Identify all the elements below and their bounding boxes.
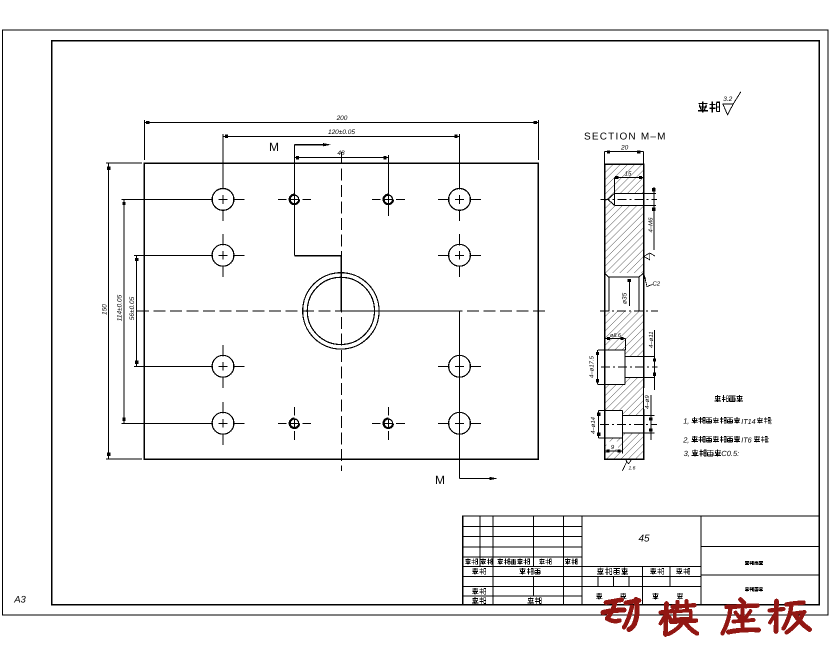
svg-text:48: 48 <box>337 150 345 157</box>
svg-text:ø35: ø35 <box>622 292 629 304</box>
svg-text:4–ø11: 4–ø11 <box>648 331 655 348</box>
svg-text:4–ø14: 4–ø14 <box>590 416 597 434</box>
svg-text:4–ø9: 4–ø9 <box>644 395 651 409</box>
svg-text:20: 20 <box>620 144 629 151</box>
svg-text:IT14: IT14 <box>741 417 755 426</box>
svg-text:3.2: 3.2 <box>723 96 732 103</box>
svg-text:SECTION M–M: SECTION M–M <box>584 132 667 143</box>
svg-text:4–ø17.5: 4–ø17.5 <box>589 355 596 378</box>
svg-text:200: 200 <box>336 115 348 122</box>
svg-text:15: 15 <box>625 170 632 177</box>
svg-text:;: ; <box>767 437 769 444</box>
svg-text:M: M <box>435 473 445 487</box>
svg-text:C2: C2 <box>652 280 660 287</box>
svg-text:1.6: 1.6 <box>629 466 636 472</box>
svg-text:1‚: 1‚ <box>683 417 689 426</box>
svg-text:4–M6: 4–M6 <box>647 217 654 233</box>
svg-text:2‚: 2‚ <box>682 435 689 444</box>
svg-text:45: 45 <box>638 534 650 545</box>
svg-text:150: 150 <box>101 304 108 315</box>
svg-text:120±0.05: 120±0.05 <box>328 129 355 136</box>
svg-text:;: ; <box>770 418 772 425</box>
svg-text:3‚: 3‚ <box>684 449 690 458</box>
svg-text:56±0.05: 56±0.05 <box>129 296 136 320</box>
svg-text:A3: A3 <box>13 595 26 606</box>
svg-text:C0.5:: C0.5: <box>721 449 739 458</box>
svg-text:M: M <box>269 140 279 154</box>
svg-text:ø8.6: ø8.6 <box>610 333 622 339</box>
svg-text:114±0.05: 114±0.05 <box>117 294 124 321</box>
svg-text:IT6: IT6 <box>741 435 751 444</box>
